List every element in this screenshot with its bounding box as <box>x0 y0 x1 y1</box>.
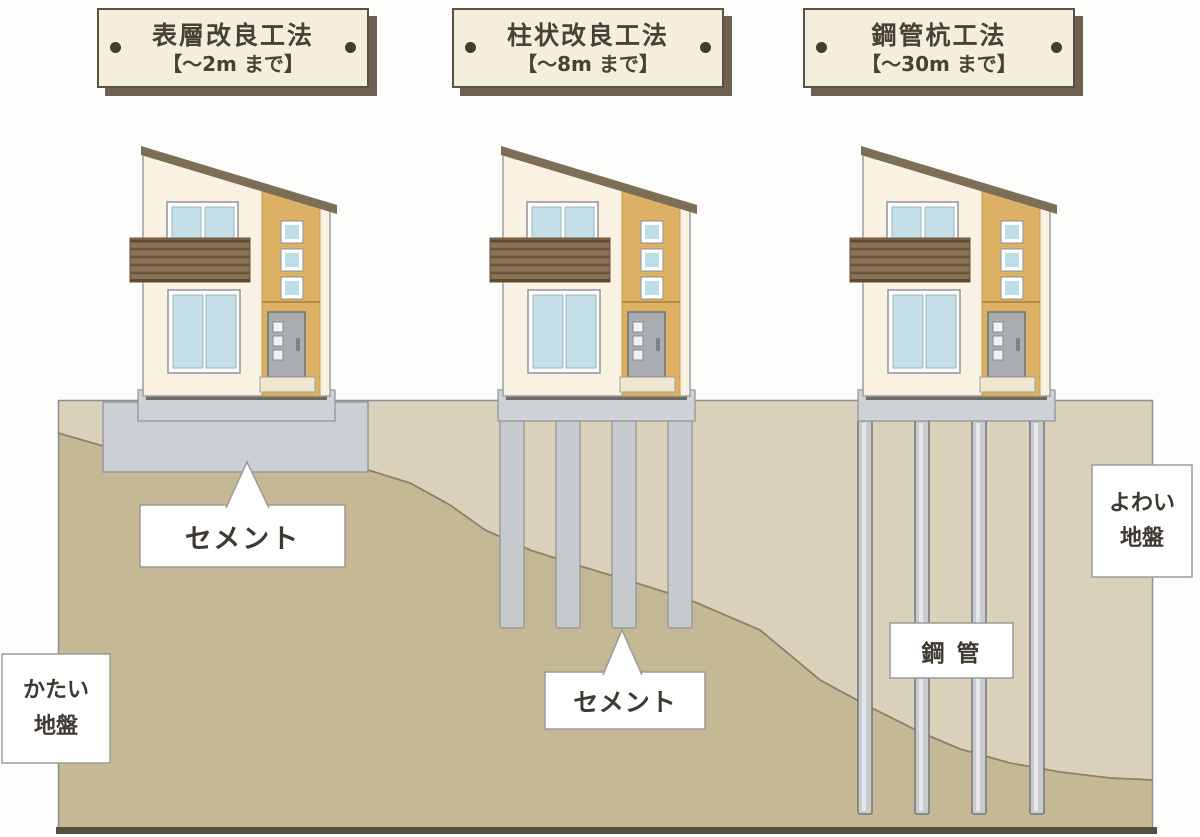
sign-dot-icon <box>700 42 711 53</box>
steel-pipe-label: 鋼 管 <box>890 623 1013 678</box>
sign-dot-icon <box>1051 42 1062 53</box>
house-1 <box>130 146 337 396</box>
sign-title: 柱状改良工法 <box>507 20 669 51</box>
sign-depth-range: 【～2m まで】 <box>162 52 304 76</box>
sign-dot-icon <box>345 42 356 53</box>
sign-depth-range: 【～8m まで】 <box>517 52 659 76</box>
diagram-canvas: 表層改良工法 【～2m まで】 柱状改良工法 【～8m まで】 鋼管杭工法 【～… <box>0 0 1200 837</box>
house-2 <box>490 146 697 396</box>
sign-dot-icon <box>110 42 121 53</box>
sign-depth-range: 【～30m まで】 <box>861 52 1017 76</box>
sign-columnar-improvement-method: 柱状改良工法 【～8m まで】 <box>452 8 724 88</box>
weak-ground-label: よわい 地盤 <box>1092 465 1192 577</box>
sign-dot-icon <box>465 42 476 53</box>
hard-ground-label: かたい 地盤 <box>2 654 110 763</box>
sign-title: 鋼管杭工法 <box>871 20 1006 51</box>
house-3 <box>850 146 1057 396</box>
sign-steel-pipe-pile-method: 鋼管杭工法 【～30m まで】 <box>803 8 1075 88</box>
sign-dot-icon <box>816 42 827 53</box>
cement-label-2: セメント <box>545 672 705 729</box>
ground-bottom-bar <box>56 827 1157 834</box>
sign-title: 表層改良工法 <box>152 20 314 51</box>
sign-surface-improvement-method: 表層改良工法 【～2m まで】 <box>97 8 369 88</box>
cement-label-1: セメント <box>140 505 345 567</box>
